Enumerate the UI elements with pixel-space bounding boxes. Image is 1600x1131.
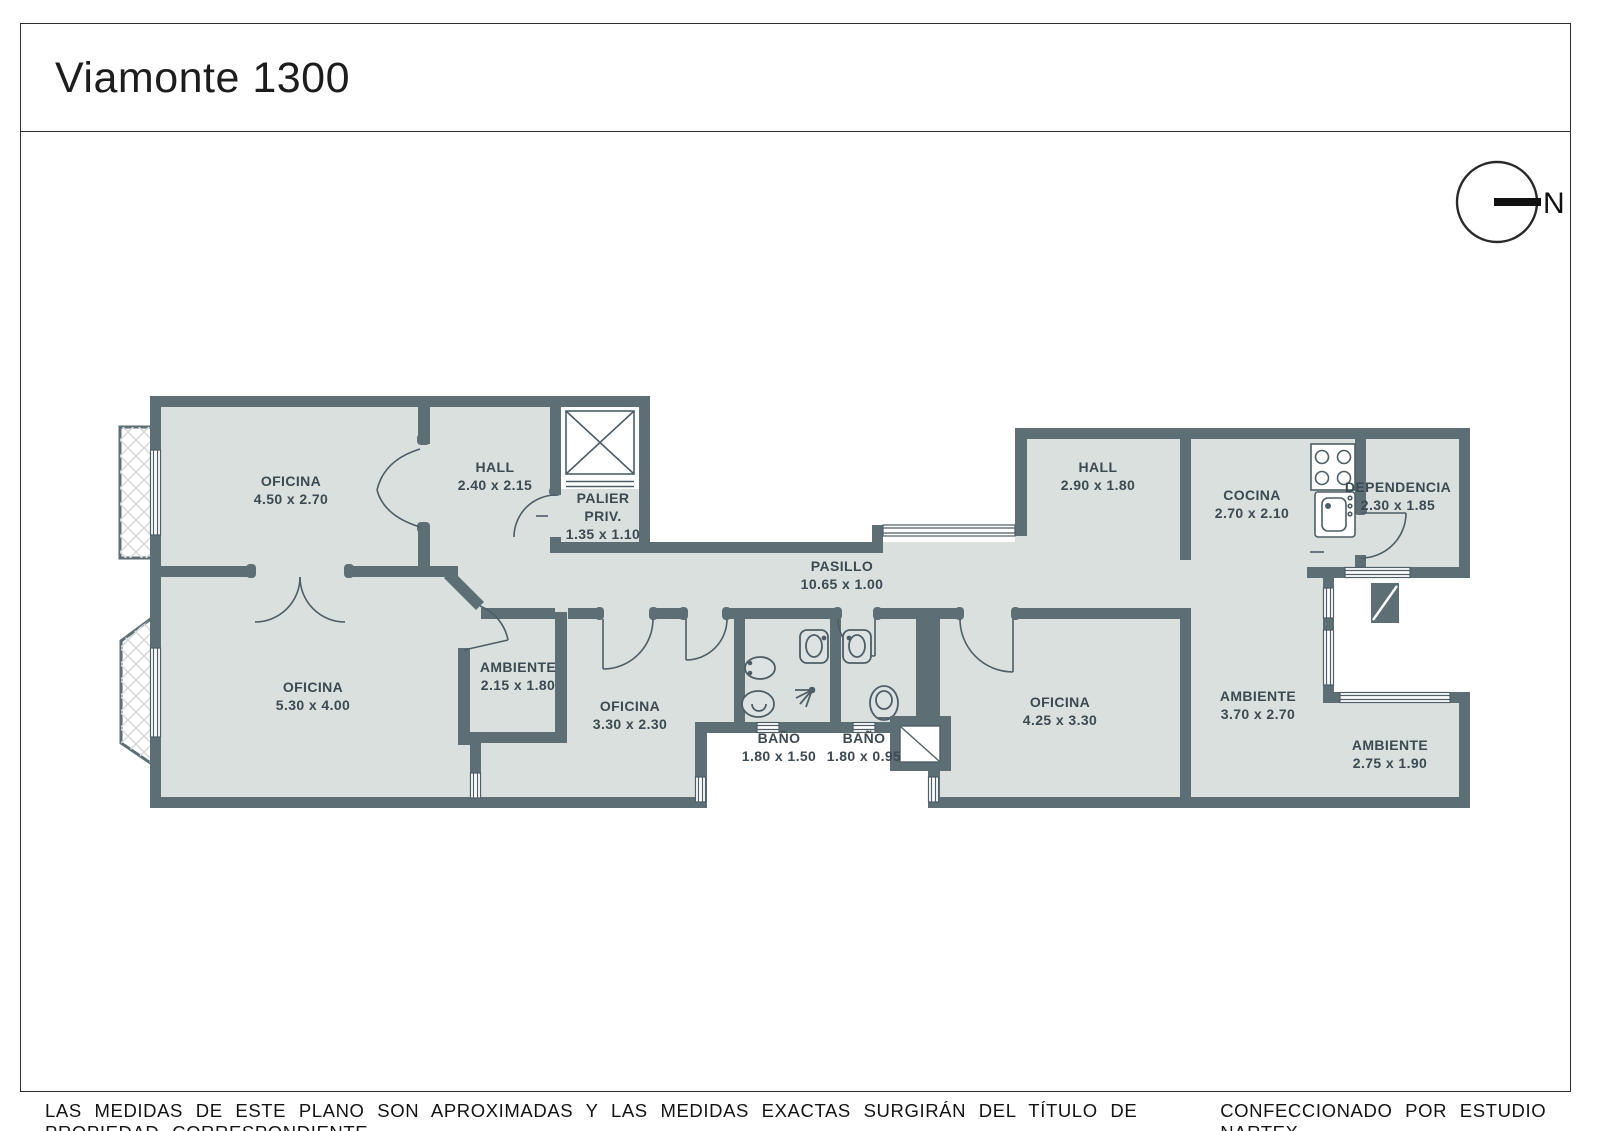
page-title: Viamonte 1300 [55, 54, 350, 103]
room-label-oficina-a: OFICINA4.50 x 2.70 [254, 473, 328, 509]
room-label-hall-b: HALL2.90 x 1.80 [1061, 459, 1135, 495]
footer-credit: CONFECCIONADO POR ESTUDIO NARTEX [1220, 1100, 1562, 1131]
floor-plan-page: N Viamonte 1300 OFICINA4.50 x 2.70 HALL2… [0, 0, 1600, 1131]
room-label-cocina: COCINA2.70 x 2.10 [1215, 487, 1289, 523]
footer-disclaimer: LAS MEDIDAS DE ESTE PLANO SON APROXIMADA… [45, 1100, 1220, 1131]
footer: LAS MEDIDAS DE ESTE PLANO SON APROXIMADA… [0, 1100, 1600, 1131]
room-label-palier: PALIERPRIV.1.35 x 1.10 [566, 490, 640, 544]
room-label-hall-a: HALL2.40 x 2.15 [458, 459, 532, 495]
title-bar: Viamonte 1300 [21, 24, 1570, 132]
room-label-oficina-c: OFICINA3.30 x 2.30 [593, 698, 667, 734]
room-label-oficina-b: OFICINA5.30 x 4.00 [276, 679, 350, 715]
room-label-oficina-d: OFICINA4.25 x 3.30 [1023, 694, 1097, 730]
room-label-dependencia: DEPENDENCIA2.30 x 1.85 [1345, 479, 1451, 515]
room-label-pasillo: PASILLO10.65 x 1.00 [801, 558, 884, 594]
room-label-ambiente-a: AMBIENTE2.15 x 1.80 [480, 659, 556, 695]
room-label-bano-b: BAÑO1.80 x 0.95 [827, 730, 901, 766]
room-label-ambiente-c: AMBIENTE2.75 x 1.90 [1352, 737, 1428, 773]
room-label-ambiente-b: AMBIENTE3.70 x 2.70 [1220, 688, 1296, 724]
sheet-frame: Viamonte 1300 [20, 23, 1571, 1092]
room-label-bano-a: BAÑO1.80 x 1.50 [742, 730, 816, 766]
